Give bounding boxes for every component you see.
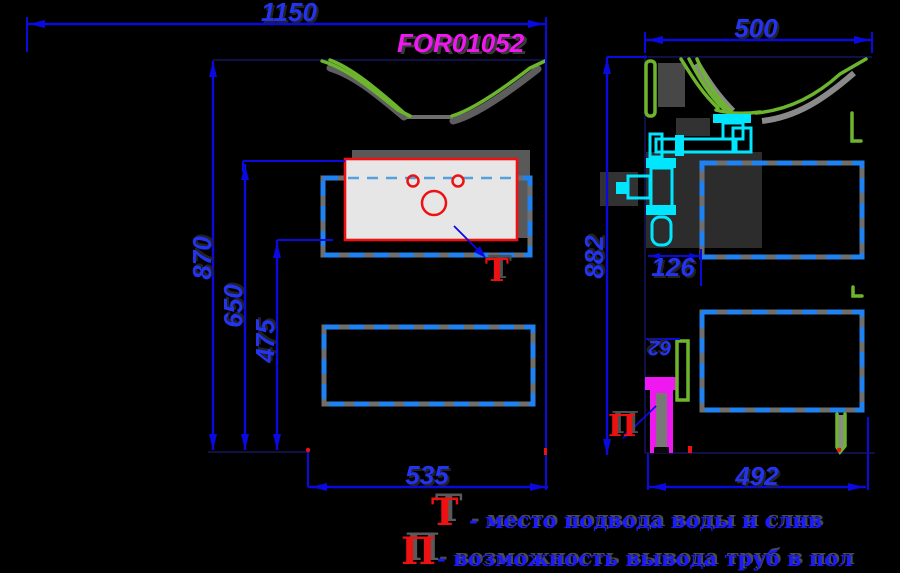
dim-total-width: 1150 xyxy=(244,0,334,26)
dim-cabinet-width: 535 xyxy=(382,461,472,489)
cabinet-leg xyxy=(837,414,845,452)
marker-floor: П xyxy=(608,409,636,444)
wall-bracket-icon xyxy=(852,113,861,141)
dim-cabinet-depth: 492 xyxy=(712,462,802,490)
dim-cabinet-top-height: 475 xyxy=(251,296,279,386)
dim-pipe-offset: 62 xyxy=(615,333,705,361)
sink-top xyxy=(345,159,517,240)
object-outlines xyxy=(208,55,875,453)
legend-symbol-floor: П xyxy=(401,533,436,569)
dim-siphon-offset: 126 xyxy=(628,253,718,281)
dim-total-height: 870 xyxy=(188,213,216,303)
product-code: FOR01052 xyxy=(397,28,524,59)
marker-water: Т xyxy=(485,251,509,289)
dim-depth: 500 xyxy=(711,14,801,42)
front-lower-cabinet xyxy=(324,327,533,404)
dim-sink-top-height: 650 xyxy=(219,261,247,351)
dim-side-height: 882 xyxy=(580,212,608,302)
legend-symbol-water: Т xyxy=(431,494,459,530)
legend-text-water: - место подвода воды и слив xyxy=(469,509,822,533)
hook-icon xyxy=(853,287,862,296)
technical-drawing: FOR01052 1150 870 650 475 535 500 882 12… xyxy=(0,0,900,573)
basin-edge-slot xyxy=(646,61,655,116)
side-lower-cabinet xyxy=(702,312,862,410)
legend-text-floor: - возможность вывода труб в пол xyxy=(437,547,853,571)
